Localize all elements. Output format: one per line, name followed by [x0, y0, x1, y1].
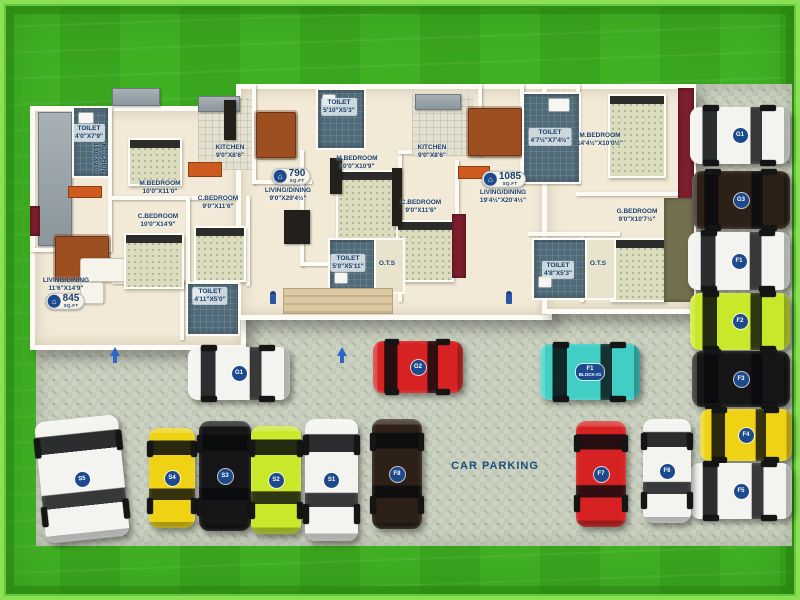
fixture-furniture: [334, 272, 348, 284]
room-label-m-bedroom: M.BEDROOM10'0"X10'9": [336, 155, 377, 171]
room-label-c-bedroom: C.BEDROOM9'0"X11'6": [198, 195, 238, 211]
car-wheel: [703, 291, 719, 297]
car-wheel: [761, 515, 777, 521]
room-dimensions: 11'0"X9'0": [91, 142, 99, 173]
car-wheel: [701, 230, 717, 236]
room-name: O.T.S: [379, 260, 395, 268]
car-wheel: [147, 441, 153, 457]
table-furniture: [256, 112, 296, 158]
sqft-unit: SQ.FT: [64, 304, 79, 309]
counter-furniture: [38, 112, 72, 246]
car-wheel: [705, 169, 721, 175]
room-label-o-t-s: O.T.S: [379, 260, 395, 268]
room-label-g-bedroom: G.BEDROOM9'0"X10'7½": [617, 208, 658, 224]
room-dimensions: 9'0"X10'7½": [617, 216, 658, 224]
bed-furniture: [336, 170, 398, 246]
car-slot-badge: G1: [733, 128, 748, 143]
car-wheel: [197, 498, 203, 516]
room-dimensions: 4'8"X5'3": [544, 270, 572, 278]
car-f2: F2: [690, 293, 790, 350]
table-furniture: [468, 108, 522, 156]
counter-furniture: [415, 94, 461, 110]
wall: [528, 232, 620, 236]
car-wheel: [705, 349, 721, 355]
room-dimensions: 9'0"X29'4½": [265, 195, 311, 203]
car-slot-id: F3: [737, 376, 744, 383]
room-dimensions: 5'10"X5'3": [323, 107, 355, 115]
room-dimensions: 5'0"X5'11": [332, 263, 363, 271]
person-icon: [506, 291, 512, 304]
car-wheel: [354, 504, 360, 524]
house-icon: ⌂: [48, 295, 61, 308]
room-label-toilet: TOILET4'0"X7'9": [73, 124, 105, 142]
car-slot-badge: F1BLOCK-01: [576, 364, 605, 380]
car-g2: G2: [373, 341, 463, 393]
room-dimensions: 19'4½"X20'4½": [480, 197, 526, 205]
car-wheel: [641, 433, 647, 450]
car-slot-badge: G1: [232, 366, 247, 381]
sqft-value-group: 790SQ.FT: [289, 169, 306, 184]
room-name: KITCHEN: [216, 144, 245, 152]
car-wheel: [370, 496, 376, 514]
room-name: M.BEDROOM: [577, 132, 623, 140]
sqft-unit: SQ.FT: [503, 182, 518, 187]
room-dimensions: 10'0"X11'0": [139, 188, 180, 196]
car-slot-badge: F6: [660, 464, 675, 479]
maroon-furniture: [452, 214, 466, 278]
car-f7: F7: [576, 421, 626, 527]
dark-furniture: [224, 100, 236, 140]
entrance-arrow-icon: [337, 342, 347, 356]
room-label-c-bedroom: C.BEDROOM9'0"X11'6": [401, 199, 441, 215]
wall: [576, 192, 686, 196]
car-slot-badge: F2: [733, 314, 748, 329]
car-wheel: [303, 435, 309, 455]
car-slot-sub: BLOCK-01: [579, 373, 602, 378]
car-s5: S5: [34, 414, 130, 544]
car-slot-badge: F7: [594, 467, 609, 482]
room-label-kitchen: KITCHEN9'0"X8'6": [216, 144, 245, 160]
room-label-toilet: TOILET4'8"X5'3": [542, 261, 574, 279]
car-wheel: [764, 407, 779, 413]
house-icon: ⌂: [274, 170, 287, 183]
car-slot-id: F1: [735, 258, 742, 265]
car-slot-id: S2: [272, 477, 279, 484]
car-slot-badge: S5: [74, 471, 90, 487]
room-dimensions: 9'0"X11'6": [198, 203, 238, 211]
car-f5: F5: [690, 463, 792, 519]
room-label-kitchen: KITCHEN9'0"X8'6": [418, 144, 447, 160]
scene: KITCHEN11'0"X9'0"TOILET4'0"X7'9"M.BEDROO…: [0, 0, 800, 600]
car-wheel: [610, 342, 626, 348]
car-slot-badge: S3: [218, 469, 233, 484]
car-f8: F8: [372, 419, 422, 529]
room-label-living-dining: LIVING/DINING19'4½"X20'4½": [480, 189, 526, 205]
car-wheel: [147, 498, 153, 514]
car-f1: F1BLOCK-01: [540, 344, 640, 400]
car-slot-id: G2: [414, 364, 422, 371]
car-slot-id: F4: [742, 432, 749, 439]
sqft-badge-845: ⌂845SQ.FT: [46, 293, 85, 310]
car-slot-id: G1: [736, 132, 744, 139]
car-wheel: [703, 105, 719, 111]
car-slot-id: S4: [168, 475, 175, 482]
car-slot-id: F6: [663, 468, 670, 475]
sqft-value-group: 1085SQ.FT: [499, 172, 521, 187]
car-wheel: [553, 396, 569, 402]
car-wheel: [385, 339, 399, 345]
room-dimensions: 9'0"X8'6": [418, 152, 447, 160]
car-slot-badge: S1: [324, 473, 339, 488]
room-name: TOILET: [332, 255, 363, 263]
room-name: TOILET: [75, 125, 103, 133]
room-name: TOILET: [323, 99, 355, 107]
room-dimensions: 10'0"X14'9": [138, 221, 178, 229]
sqft-unit: SQ.FT: [290, 179, 305, 184]
room-name: LIVING/DINING: [480, 189, 526, 197]
car-f4: F4: [700, 409, 792, 461]
room-label-living-dining: LIVING/DINING11'6"X14'9": [43, 277, 89, 293]
car-wheel: [574, 435, 580, 452]
car-slot-id: S5: [78, 475, 86, 482]
car-wheel: [687, 433, 693, 450]
orange-furniture: [68, 186, 102, 198]
room-name: KITCHEN: [418, 144, 447, 152]
car-wheel: [259, 345, 275, 351]
car-wheel: [687, 492, 693, 509]
car-slot-id: F2: [736, 318, 743, 325]
car-wheel: [641, 492, 647, 509]
room-dimensions: 9'0"X8'6": [216, 152, 245, 160]
car-wheel: [303, 504, 309, 524]
room-label-o-t-s: O.T.S: [590, 260, 606, 268]
car-g1: G1: [690, 107, 790, 164]
car-wheel: [201, 396, 217, 402]
room-dimensions: 10'0"X10'9": [336, 163, 377, 171]
car-wheel: [622, 495, 628, 512]
room-dimensions: 14'4½"X10'0½": [577, 140, 623, 148]
car-wheel: [201, 345, 217, 351]
room-label-living-dining: LIVING/DINING9'0"X29'4½": [265, 187, 311, 203]
car-parking-label: CAR PARKING: [451, 460, 539, 472]
car-wheel: [712, 407, 727, 413]
car-wheel: [761, 461, 777, 467]
car-wheel: [249, 440, 255, 457]
car-g3: G3: [692, 171, 790, 229]
car-slot-id: G3: [737, 197, 745, 204]
room-label-toilet: TOILET4'7½"X7'4½": [529, 128, 572, 146]
room-name: TOILET: [194, 288, 225, 296]
car-slot-id: F5: [737, 488, 744, 495]
car-slot-badge: F1: [732, 254, 747, 269]
room-label-toilet: TOILET4'11"X5'0": [192, 287, 227, 305]
car-slot-badge: F5: [734, 484, 749, 499]
car-slot-badge: F8: [390, 467, 405, 482]
room-label-toilet: TOILET5'10"X5'3": [321, 98, 357, 116]
car-wheel: [622, 435, 628, 452]
wall: [180, 280, 184, 340]
car-s2: S2: [251, 426, 301, 534]
car-wheel: [761, 349, 777, 355]
fixture-furniture: [548, 98, 570, 112]
maroon-furniture: [30, 206, 40, 236]
ots-furniture: [585, 238, 616, 300]
wall: [246, 196, 250, 286]
sqft-badge-1085: ⌂1085SQ.FT: [482, 171, 526, 188]
room-name: LIVING/DINING: [265, 187, 311, 195]
car-wheel: [553, 342, 569, 348]
entrance-arrow-icon: [110, 342, 120, 356]
person-icon: [270, 291, 276, 304]
car-wheel: [34, 438, 42, 459]
car-slot-id: G1: [235, 370, 243, 377]
car-wheel: [760, 291, 776, 297]
dark-furniture: [284, 210, 310, 244]
car-wheel: [760, 105, 776, 111]
room-dimensions: 4'7½"X7'4½": [531, 137, 570, 145]
car-slot-badge: G2: [411, 360, 426, 375]
car-wheel: [436, 339, 450, 345]
car-wheel: [354, 435, 360, 455]
car-slot-id: F8: [393, 471, 400, 478]
room-dimensions: 4'11"X5'0": [194, 296, 225, 304]
car-wheel: [436, 389, 450, 395]
car-wheel: [385, 389, 399, 395]
room-label-m-bedroom: M.BEDROOM14'4½"X10'0½": [577, 132, 623, 148]
room-name: G.BEDROOM: [617, 208, 658, 216]
car-slot-badge: F3: [734, 372, 749, 387]
room-name: TOILET: [531, 129, 570, 137]
car-slot-badge: S4: [165, 471, 180, 486]
room-dimensions: 4'0"X7'9": [75, 133, 103, 141]
car-wheel: [610, 396, 626, 402]
car-wheel: [759, 230, 775, 236]
car-slot-badge: G3: [734, 193, 749, 208]
car-g1: G1: [188, 347, 290, 400]
car-wheel: [197, 435, 203, 453]
car-s3: S3: [199, 421, 251, 531]
room-name: C.BEDROOM: [138, 213, 178, 221]
car-wheel: [761, 169, 777, 175]
car-wheel: [574, 495, 580, 512]
car-s1: S1: [305, 419, 358, 541]
car-wheel: [259, 396, 275, 402]
room-dimensions: 9'0"X11'6": [401, 207, 441, 215]
car-f3: F3: [692, 351, 790, 407]
orange-furniture: [188, 162, 222, 177]
sqft-value-group: 845SQ.FT: [63, 294, 80, 309]
car-s4: S4: [149, 428, 195, 528]
car-slot-id: F7: [597, 471, 604, 478]
car-slot-id: S1: [328, 477, 335, 484]
room-name: TOILET: [544, 262, 572, 270]
car-wheel: [370, 433, 376, 451]
car-wheel: [703, 515, 719, 521]
car-f6: F6: [643, 419, 691, 523]
room-name: KITCHEN: [99, 142, 107, 173]
car-slot-badge: S2: [269, 473, 284, 488]
room-name: M.BEDROOM: [336, 155, 377, 163]
car-wheel: [418, 433, 424, 451]
room-name: C.BEDROOM: [401, 199, 441, 207]
bed-furniture: [128, 138, 182, 186]
car-f1: F1: [688, 232, 790, 290]
room-name: O.T.S: [590, 260, 606, 268]
car-wheel: [703, 461, 719, 467]
car-slot-badge: F4: [739, 428, 754, 443]
bed-furniture: [610, 238, 666, 302]
bed-furniture: [124, 233, 184, 289]
room-label-m-bedroom: M.BEDROOM10'0"X11'0": [139, 180, 180, 196]
room-name: LIVING/DINING: [43, 277, 89, 285]
steps-furniture: [283, 288, 393, 314]
counter-furniture: [112, 88, 160, 106]
room-label-toilet: TOILET5'0"X5'11": [330, 254, 365, 272]
sqft-badge-790: ⌂790SQ.FT: [272, 168, 311, 185]
room-name: M.BEDROOM: [139, 180, 180, 188]
car-wheel: [418, 496, 424, 514]
car-wheel: [41, 507, 49, 528]
car-wheel: [703, 160, 719, 166]
room-name: C.BEDROOM: [198, 195, 238, 203]
room-label-c-bedroom: C.BEDROOM10'0"X14'9": [138, 213, 178, 229]
wall: [186, 196, 190, 286]
car-slot-id: S3: [221, 473, 228, 480]
dark-furniture: [392, 168, 402, 226]
bed-furniture: [194, 226, 246, 282]
car-wheel: [249, 502, 255, 519]
room-label-kitchen: KITCHEN11'0"X9'0": [91, 142, 107, 173]
fixture-furniture: [78, 112, 94, 124]
car-wheel: [760, 160, 776, 166]
house-icon: ⌂: [484, 173, 497, 186]
